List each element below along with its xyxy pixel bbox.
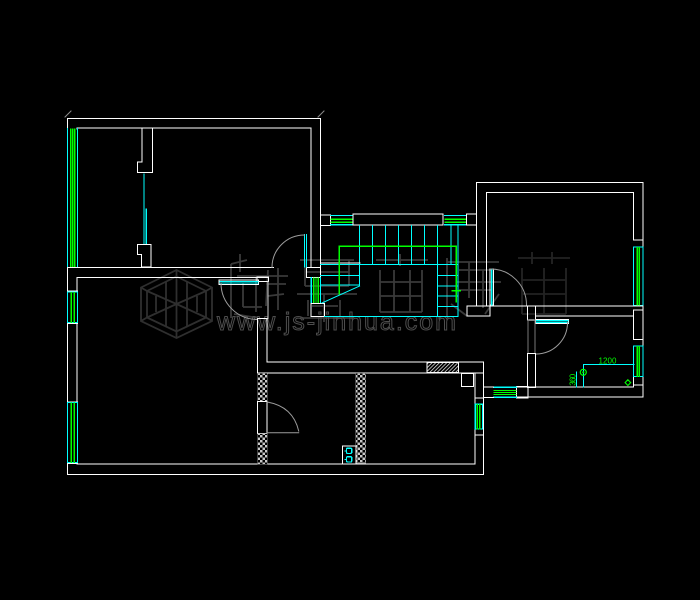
svg-text:360: 360 <box>569 373 578 386</box>
svg-text:1200: 1200 <box>599 357 618 366</box>
svg-text:www.js-jinhua.com: www.js-jinhua.com <box>216 308 458 336</box>
